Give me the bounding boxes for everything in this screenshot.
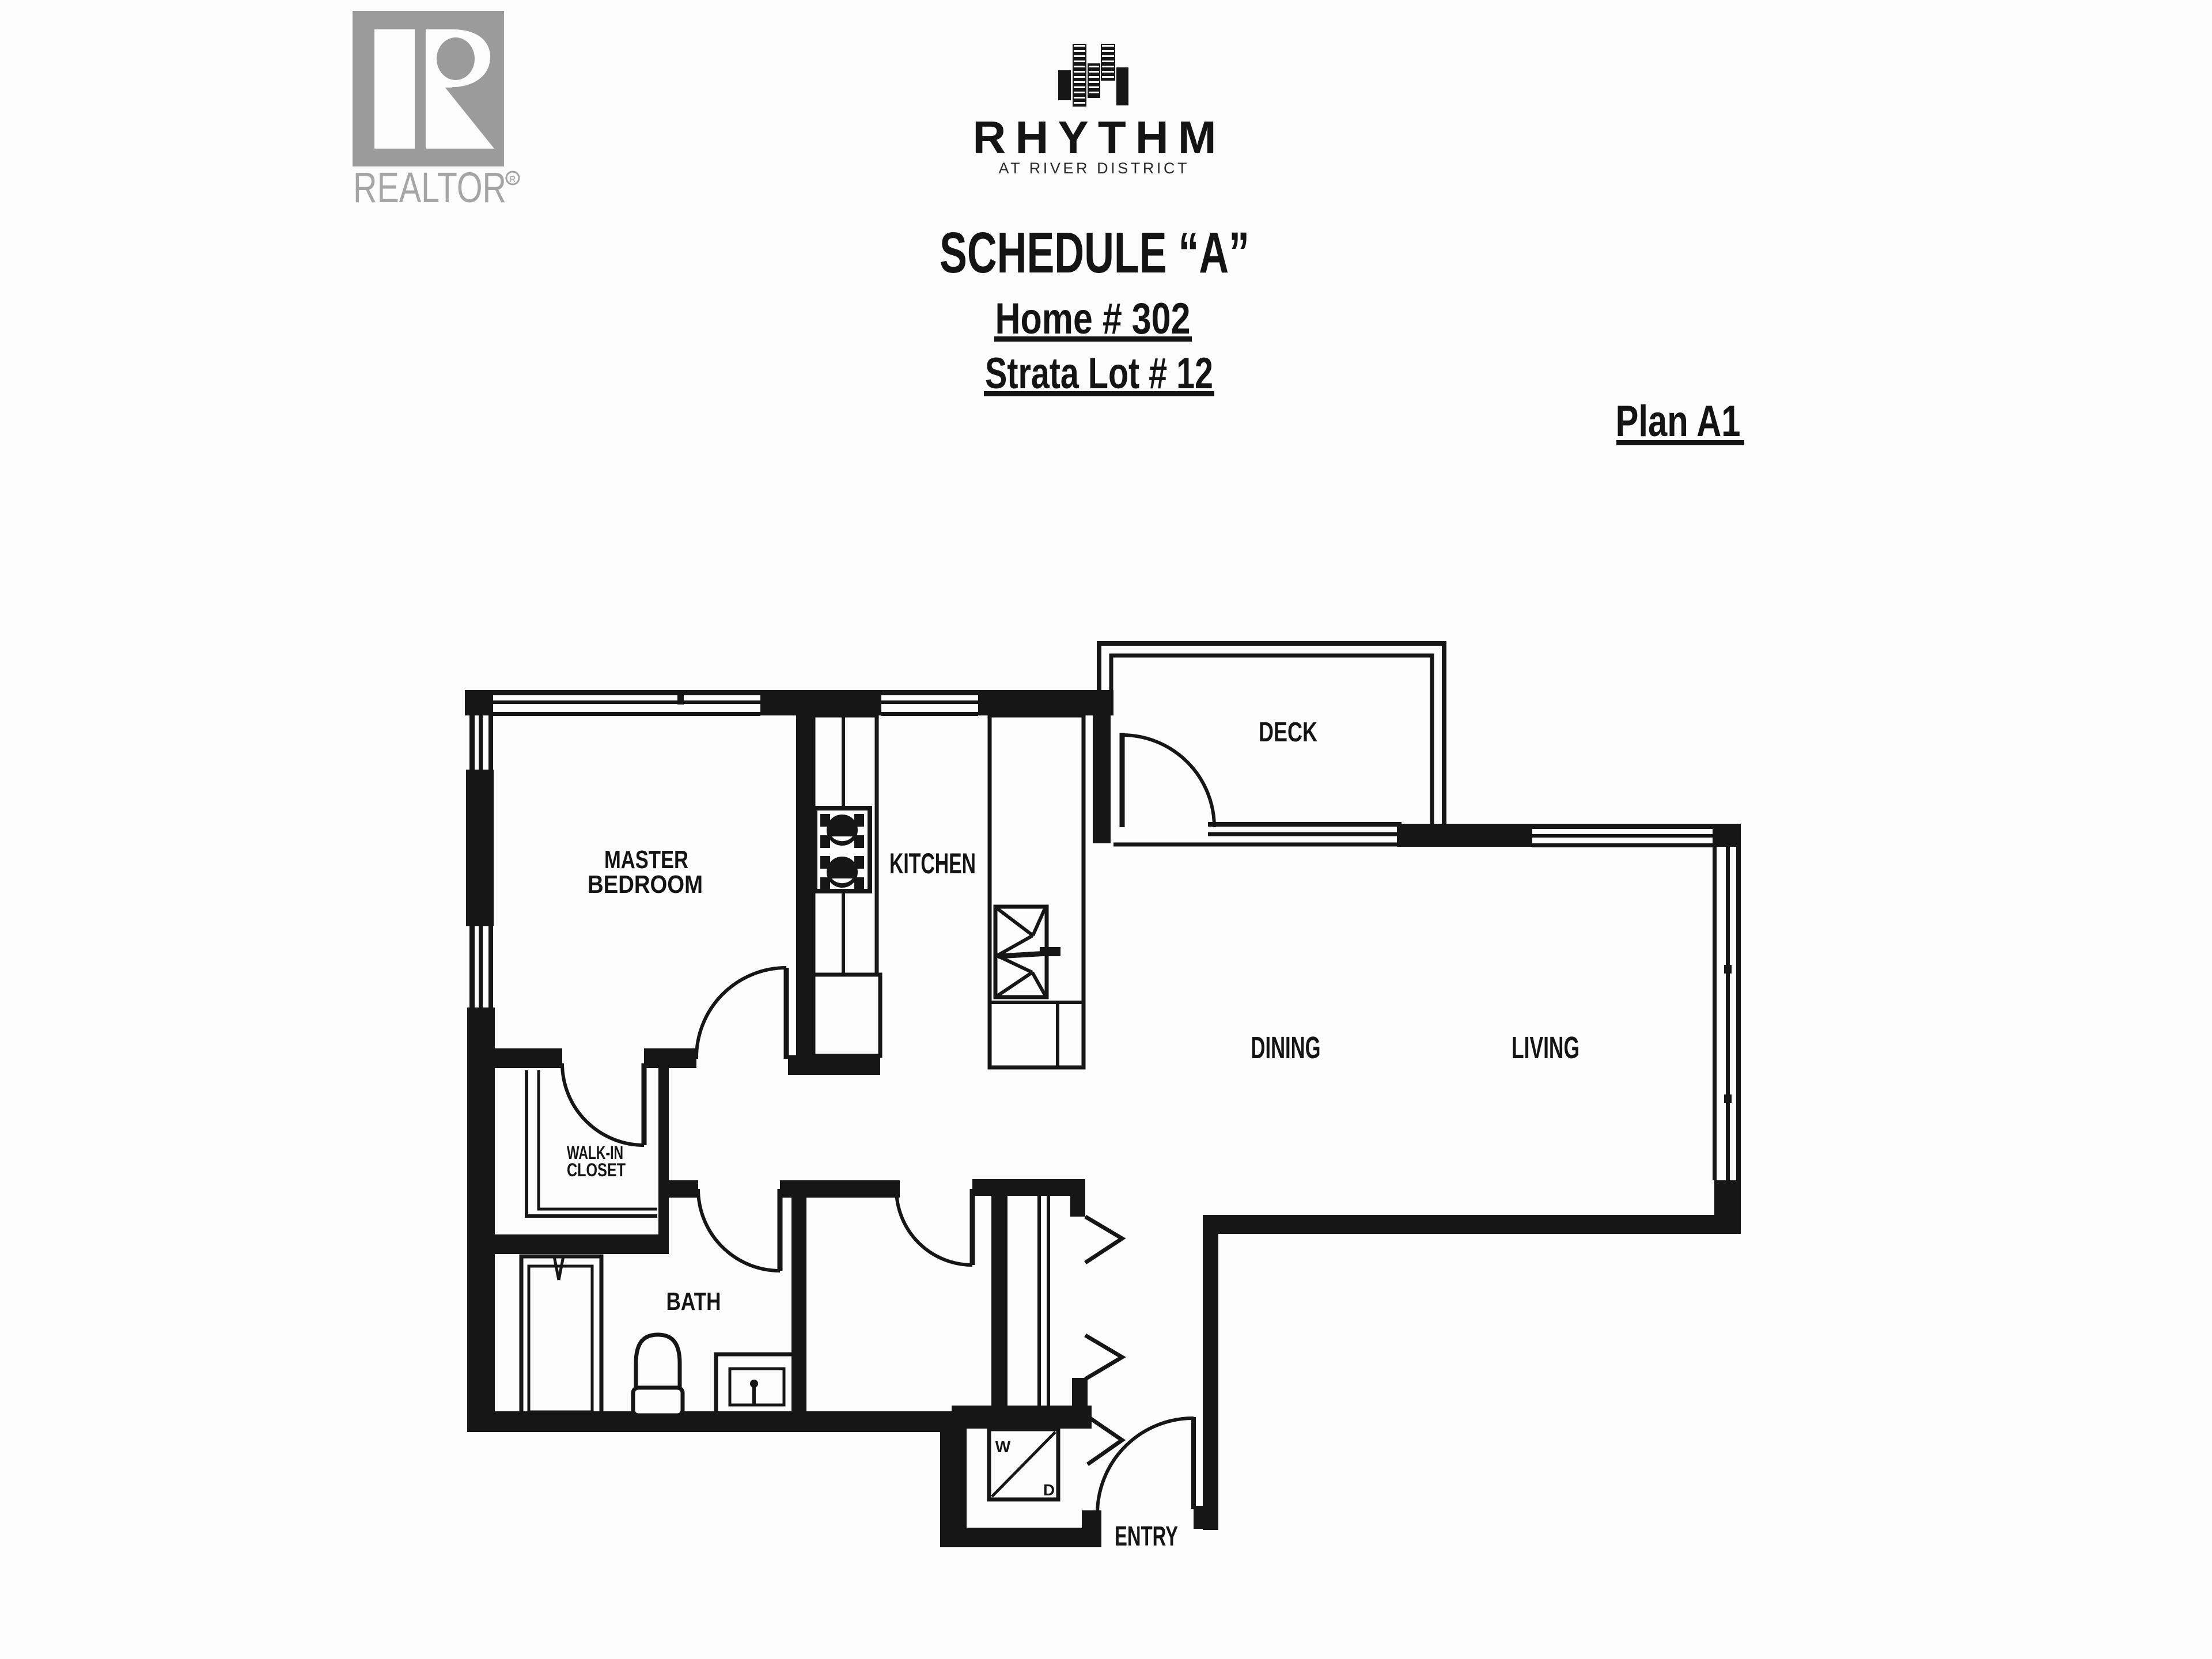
svg-text:Home # 302: Home # 302 [995,294,1191,343]
svg-text:Strata Lot # 12: Strata Lot # 12 [985,349,1213,398]
svg-text:MASTER: MASTER [604,846,688,874]
svg-text:Plan A1: Plan A1 [1616,397,1741,446]
svg-text:W: W [995,1438,1011,1456]
svg-text:LIVING: LIVING [1512,1031,1580,1065]
svg-text:REALTOR: REALTOR [353,164,506,211]
svg-text:D: D [1043,1481,1055,1499]
svg-text:CLOSET: CLOSET [567,1160,626,1180]
svg-text:DINING: DINING [1251,1031,1321,1065]
svg-text:DECK: DECK [1259,717,1317,748]
svg-text:BEDROOM: BEDROOM [588,870,703,899]
svg-text:ENTRY: ENTRY [1115,1521,1178,1552]
svg-text:SCHEDULE “A”: SCHEDULE “A” [940,221,1249,285]
svg-text:BATH: BATH [666,1287,721,1316]
svg-text:KITCHEN: KITCHEN [889,847,976,880]
svg-text:R: R [510,175,516,184]
